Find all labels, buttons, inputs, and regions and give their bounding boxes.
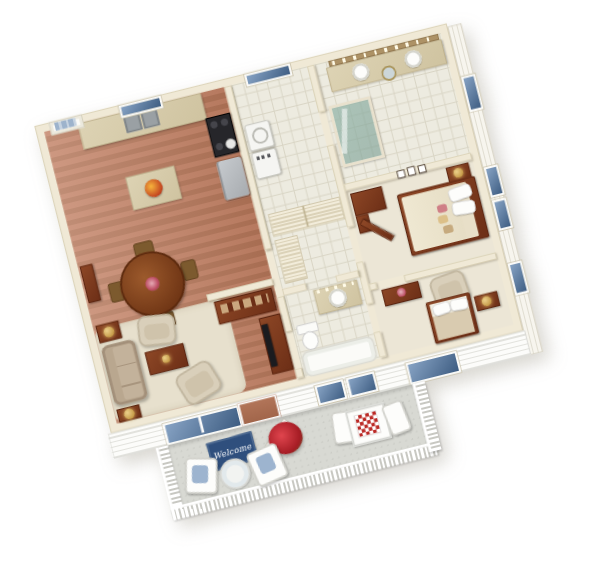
armchair (136, 313, 177, 347)
floor-plan-image: Welcome (0, 0, 600, 581)
chair-cushion (192, 465, 208, 483)
armchair-seat (183, 369, 216, 399)
apartment-3d-floor-plan: Welcome (27, 17, 565, 533)
armchair-seat (144, 323, 171, 341)
shower-glass-highlight (342, 109, 347, 154)
